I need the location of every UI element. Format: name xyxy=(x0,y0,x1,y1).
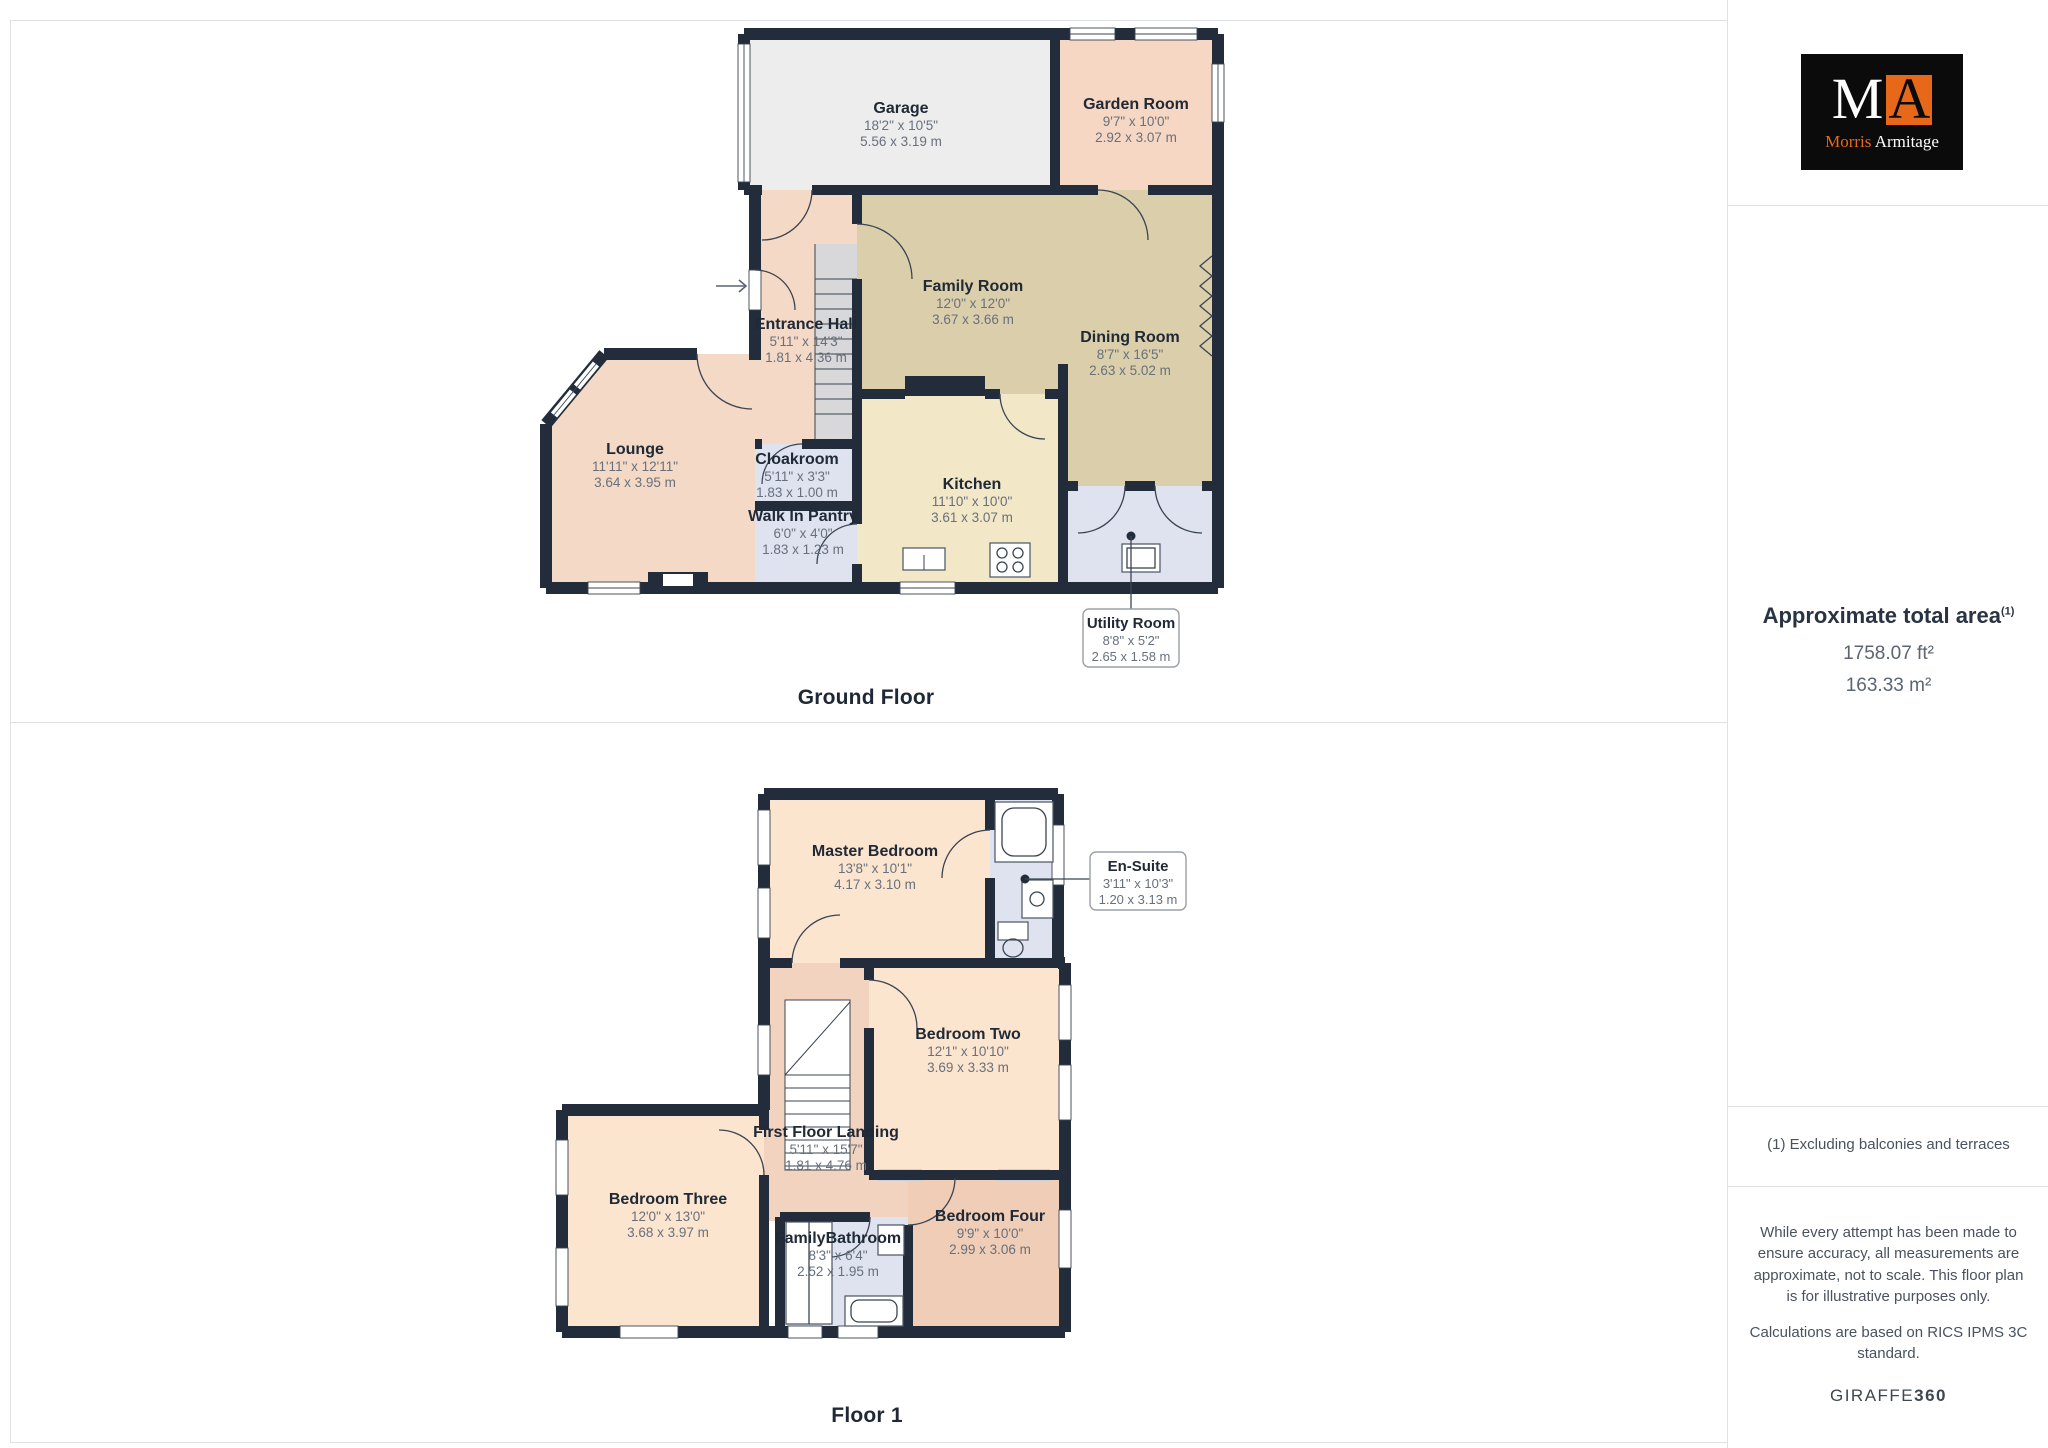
lounge-fireplace xyxy=(648,572,708,588)
svg-text:Garden Room: Garden Room xyxy=(1083,96,1189,113)
svg-text:5'11" x 15'7": 5'11" x 15'7" xyxy=(789,1142,862,1157)
svg-text:Lounge: Lounge xyxy=(606,441,664,458)
svg-text:11'10" x 10'0": 11'10" x 10'0" xyxy=(932,494,1013,509)
svg-text:1.81 x 4.76 m: 1.81 x 4.76 m xyxy=(785,1158,867,1173)
svg-text:3.69 x 3.33 m: 3.69 x 3.33 m xyxy=(927,1060,1009,1075)
entrance-hall-label: Entrance Hall 5'11" x 14'3" 1.81 x 4.36 … xyxy=(755,316,857,365)
giraffe360-logo: GIRAFFE360 xyxy=(1729,1386,2048,1406)
svg-text:En-Suite: En-Suite xyxy=(1108,858,1169,875)
ground-floor-caption: Ground Floor xyxy=(716,686,1016,710)
cloakroom-label: Cloakroom 5'11" x 3'3" 1.83 x 1.00 m xyxy=(755,451,839,500)
svg-text:5'11" x 3'3": 5'11" x 3'3" xyxy=(764,469,830,484)
svg-text:Family Room: Family Room xyxy=(923,278,1023,295)
room-landing-corridor xyxy=(869,1175,908,1221)
svg-text:Bedroom Three: Bedroom Three xyxy=(609,1191,727,1208)
svg-text:18'2" x 10'5": 18'2" x 10'5" xyxy=(864,118,938,133)
ground-floor-plan: Garage 18'2" x 10'5" 5.56 x 3.19 m Garde… xyxy=(500,24,1260,674)
svg-text:Cloakroom: Cloakroom xyxy=(755,451,839,468)
logo-word-armitage: Armitage xyxy=(1875,132,1939,151)
sidebar-divider-line xyxy=(1727,0,1728,1448)
total-area-m: 163.33 m² xyxy=(1729,675,2048,697)
svg-text:11'11" x 12'11": 11'11" x 12'11" xyxy=(592,459,678,474)
svg-text:1.20 x 3.13 m: 1.20 x 3.13 m xyxy=(1099,892,1178,907)
svg-text:Entrance Hall: Entrance Hall xyxy=(755,316,857,333)
bedroom-two-label: Bedroom Two 12'1" x 10'10" 3.69 x 3.33 m xyxy=(915,1026,1021,1075)
svg-text:9'9" x 10'0": 9'9" x 10'0" xyxy=(957,1226,1024,1241)
svg-text:3.68 x 3.97 m: 3.68 x 3.97 m xyxy=(627,1225,709,1240)
disclaimer-accuracy: While every attempt has been made to ens… xyxy=(1748,1222,2029,1307)
logo-letter-a: A xyxy=(1886,75,1932,125)
logo-letter-m: M xyxy=(1832,72,1884,125)
morris-armitage-logo: M A Morris Armitage xyxy=(1801,54,1963,170)
frame-left-line xyxy=(10,20,11,1442)
svg-text:FamilyBathroom: FamilyBathroom xyxy=(775,1230,901,1247)
disclaimer-rics: Calculations are based on RICS IPMS 3C s… xyxy=(1748,1322,2029,1365)
svg-text:Kitchen: Kitchen xyxy=(943,476,1002,493)
svg-text:2.99 x 3.06 m: 2.99 x 3.06 m xyxy=(949,1242,1031,1257)
logo-letters: M A xyxy=(1832,72,1933,125)
svg-text:13'8" x 10'1": 13'8" x 10'1" xyxy=(838,861,912,876)
front-door-gap xyxy=(749,270,761,310)
svg-text:3.67 x 3.66 m: 3.67 x 3.66 m xyxy=(932,312,1014,327)
svg-text:Utility Room: Utility Room xyxy=(1087,615,1175,632)
svg-text:5.56 x 3.19 m: 5.56 x 3.19 m xyxy=(860,134,942,149)
svg-text:8'7" x 16'5": 8'7" x 16'5" xyxy=(1097,347,1164,362)
svg-text:Dining Room: Dining Room xyxy=(1080,329,1180,346)
svg-text:8'3" x 6'4": 8'3" x 6'4" xyxy=(808,1248,867,1263)
svg-text:1.81 x 4.36 m: 1.81 x 4.36 m xyxy=(765,350,847,365)
svg-text:12'0" x 13'0": 12'0" x 13'0" xyxy=(631,1209,705,1224)
floor-1-plan: Master Bedroom 13'8" x 10'1" 4.17 x 3.10… xyxy=(540,770,1200,1370)
sidebar-top-divider xyxy=(1728,205,2048,206)
kitchen-label: Kitchen 11'10" x 10'0" 3.61 x 3.07 m xyxy=(931,476,1013,525)
logo-wordmark: Morris Armitage xyxy=(1825,132,1939,152)
frame-top-line xyxy=(10,20,1727,21)
frame-bottom-line xyxy=(10,1442,1727,1443)
svg-text:6'0" x 4'0": 6'0" x 4'0" xyxy=(773,526,832,541)
svg-text:3.64 x 3.95 m: 3.64 x 3.95 m xyxy=(594,475,676,490)
family-room-label: Family Room 12'0" x 12'0" 3.67 x 3.66 m xyxy=(923,278,1023,327)
svg-text:8'8" x 5'2": 8'8" x 5'2" xyxy=(1103,633,1160,648)
svg-text:First Floor Landing: First Floor Landing xyxy=(753,1124,899,1141)
entrance-arrow-icon xyxy=(716,280,746,292)
svg-text:12'1" x 10'10": 12'1" x 10'10" xyxy=(927,1044,1009,1059)
svg-text:Walk In Pantry: Walk In Pantry xyxy=(748,508,858,525)
floorplan-page: Garage 18'2" x 10'5" 5.56 x 3.19 m Garde… xyxy=(0,0,2048,1448)
total-area-title: Approximate total area(1) xyxy=(1729,603,2048,629)
en-suite-label: En-Suite 3'11" x 10'3" 1.20 x 3.13 m xyxy=(1099,858,1178,907)
floor-divider-line xyxy=(10,722,1727,723)
svg-text:Garage: Garage xyxy=(873,100,928,117)
svg-text:Bedroom Four: Bedroom Four xyxy=(935,1208,1045,1225)
svg-text:4.17 x 3.10 m: 4.17 x 3.10 m xyxy=(834,877,916,892)
footnote-excluding: (1) Excluding balconies and terraces xyxy=(1729,1136,2048,1153)
sidebar-footnote-divider-bottom xyxy=(1728,1186,2048,1187)
room-utility xyxy=(1063,486,1218,588)
svg-text:Master Bedroom: Master Bedroom xyxy=(812,843,938,860)
svg-text:2.65 x 1.58 m: 2.65 x 1.58 m xyxy=(1092,649,1171,664)
total-area-ft: 1758.07 ft² xyxy=(1729,643,2048,665)
sidebar-footnote-divider-top xyxy=(1728,1106,2048,1107)
svg-text:2.52 x 1.95 m: 2.52 x 1.95 m xyxy=(797,1264,879,1279)
svg-text:3'11" x 10'3": 3'11" x 10'3" xyxy=(1103,876,1174,891)
svg-text:9'7" x 10'0": 9'7" x 10'0" xyxy=(1103,114,1170,129)
svg-text:1.83 x 1.00 m: 1.83 x 1.00 m xyxy=(756,485,838,500)
svg-text:3.61 x 3.07 m: 3.61 x 3.07 m xyxy=(931,510,1013,525)
floor-1-caption: Floor 1 xyxy=(717,1404,1017,1428)
utility-appliance xyxy=(1122,544,1160,572)
svg-text:12'0" x 12'0": 12'0" x 12'0" xyxy=(936,296,1010,311)
svg-text:2.92 x 3.07 m: 2.92 x 3.07 m xyxy=(1095,130,1177,145)
chimney-breast xyxy=(905,376,985,396)
svg-text:2.63 x 5.02 m: 2.63 x 5.02 m xyxy=(1089,363,1171,378)
svg-text:Bedroom Two: Bedroom Two xyxy=(915,1026,1021,1043)
svg-text:5'11" x 14'3": 5'11" x 14'3" xyxy=(769,334,842,349)
logo-word-morris: Morris xyxy=(1825,132,1871,151)
svg-text:1.83 x 1.23 m: 1.83 x 1.23 m xyxy=(762,542,844,557)
footnote-marker: (1) xyxy=(2001,606,2014,618)
